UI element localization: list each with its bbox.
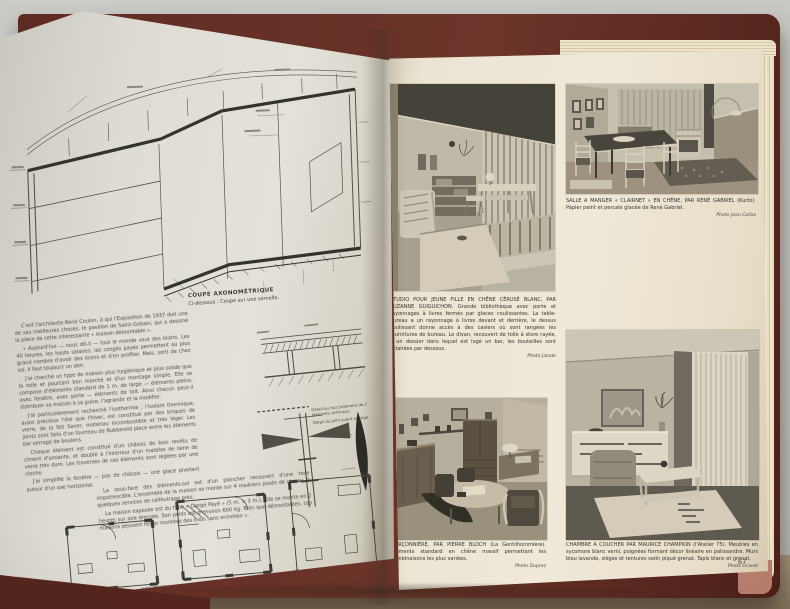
page-number: 67 — [738, 558, 746, 566]
caption-text: CHAMBRE A COUCHER PAR MAURICE CHAMPION (… — [566, 542, 758, 563]
photo-salle-a-manger — [566, 84, 758, 194]
photo-studio-jeune-fille — [390, 84, 555, 291]
caption-chambre: CHAMBRE A COUCHER PAR MAURICE CHAMPION (… — [566, 542, 758, 569]
photo-credit: Photo Duprez — [391, 564, 546, 569]
right-page: SALLE A MANGER « CLAIRNET » EN CHÊNE, PA… — [386, 50, 768, 590]
caption-studio: STUDIO POUR JEUNE FILLE EN CHÊNE CÉRUSÉ … — [390, 297, 556, 359]
left-page: COUPE AXONOMÉTRIQUE Ci-dessous : Coupe s… — [0, 0, 394, 604]
caption-text: STUDIO POUR JEUNE FILLE EN CHÊNE CÉRUSÉ … — [390, 297, 556, 353]
photo-credit: Photo Gravot — [566, 564, 758, 569]
axonometric-drawing — [6, 42, 377, 308]
article-text-column: C'est l'architecte René Coulon, à qui l'… — [14, 311, 200, 496]
photo-credit: Photo Jalade — [390, 354, 556, 359]
photo-credit: Photo Jean Collas — [566, 213, 756, 218]
photo-open-book: COUPE AXONOMÉTRIQUE Ci-dessous : Coupe s… — [0, 0, 790, 609]
photo-chambre-a-coucher — [566, 330, 759, 540]
photo-garconniere — [391, 398, 547, 540]
gutter-shadow — [362, 30, 406, 605]
book-drop-shadow — [40, 578, 750, 604]
caption-text: GARÇONNIÈRE, PAR PIERRE BLOCH (La Gentil… — [391, 542, 546, 563]
caption-salle-a-manger: SALLE A MANGER « CLAIRNET » EN CHÊNE, PA… — [566, 198, 756, 218]
caption-garconniere: GARÇONNIÈRE, PAR PIERRE BLOCH (La Gentil… — [391, 542, 546, 569]
caption-text: SALLE A MANGER « CLAIRNET » EN CHÊNE, PA… — [566, 198, 756, 212]
